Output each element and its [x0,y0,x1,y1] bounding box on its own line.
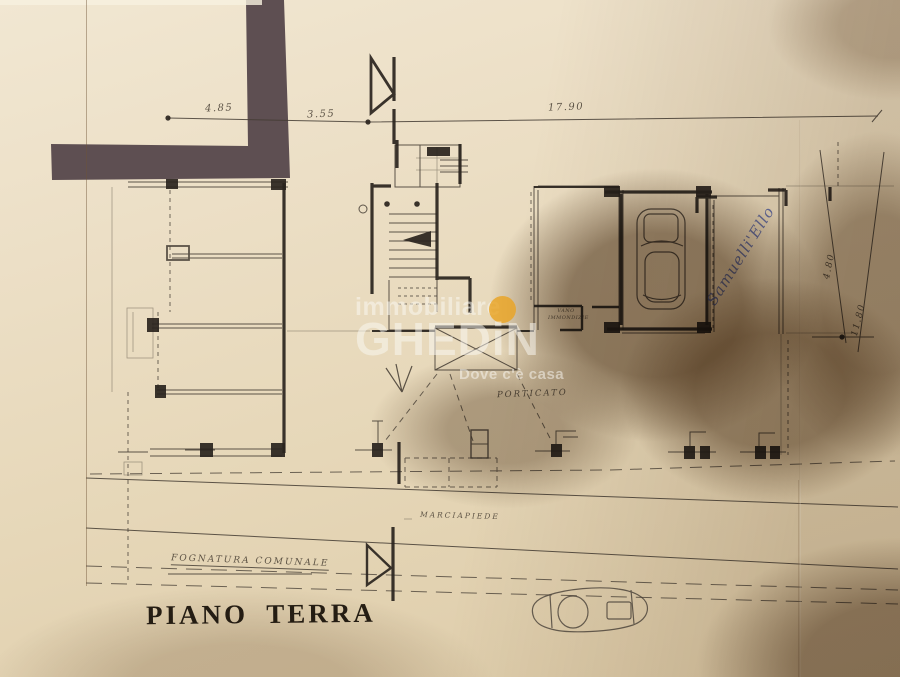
paving-grid [405,458,497,487]
stair-direction-triangle [403,231,431,247]
dimension-label-485: 4.85 [205,103,234,115]
car-top-view [637,209,685,309]
dimension-label-355: 3.55 [307,109,336,121]
dimension-label-1790: 17.90 [548,101,585,113]
right-dimension-lines [812,150,884,352]
paper-crease [798,480,801,677]
watermark-tagline: Dove c'è casa [459,366,564,383]
kerb-line-upper [86,478,898,507]
paper-crease-upper [799,120,801,480]
sewer-line-1 [86,566,898,590]
canopy-line [90,461,895,474]
plan-title: PIANO TERRA [146,598,376,631]
watermark: immobiliare GHEDiN Dove c'è casa [350,293,570,393]
car-side-view [532,588,647,632]
floorplan-photo: 4.85 3.55 17.90 4.80 11.80 PORTICATO MAR… [0,0,900,677]
watermark-brand: GHEDiN [355,312,540,366]
sheet-edge-line [86,0,87,586]
paper-top-edge [0,0,262,5]
